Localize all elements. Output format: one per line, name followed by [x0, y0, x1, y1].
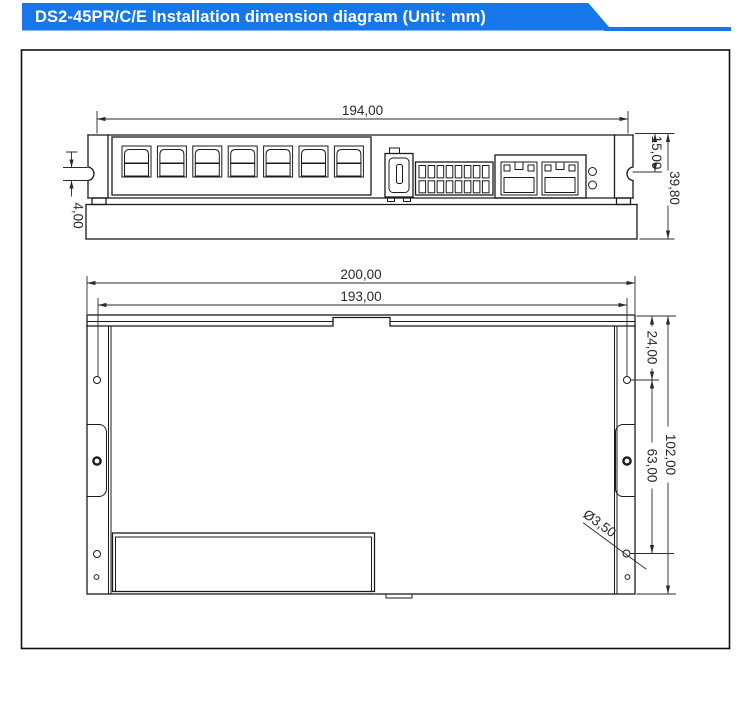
terminal-cell [264, 146, 293, 177]
mounting-rails [109, 326, 618, 594]
dimension-diagram: 194,00 4,00 15,00 39,80 [0, 0, 750, 720]
pin-header [416, 162, 494, 195]
housing-outline [86, 135, 637, 239]
pin-column [419, 166, 426, 193]
rj45-port [542, 162, 578, 195]
terminal-cell [122, 146, 151, 177]
mounting-holes [94, 377, 631, 580]
top-view: 194,00 4,00 15,00 39,80 [64, 103, 683, 239]
pin-column [455, 166, 462, 193]
pin-column [437, 166, 444, 193]
terminal-cell [299, 146, 328, 177]
dim-notch-height: 4,00 [64, 152, 88, 229]
terminal-cell [193, 146, 222, 177]
dim-label-notch-offset: 15,00 [649, 136, 664, 170]
pin-column [446, 166, 453, 193]
bottom-view: 200,00 193,00 24,00 63,00 [87, 267, 678, 598]
dim-hole-top-offset: 24,00 [632, 316, 676, 380]
rj45-port [501, 162, 537, 195]
pin-column [482, 166, 489, 193]
dim-label-total-height: 39,80 [667, 171, 682, 205]
plate-outline [87, 315, 635, 594]
led-indicators [589, 168, 597, 190]
terminal-cell [157, 146, 186, 177]
pin-column [464, 166, 471, 193]
dim-label-overall-height: 102,00 [663, 434, 678, 475]
usb-connector [385, 148, 413, 202]
led-indicator [589, 168, 597, 176]
dim-label-body-width: 194,00 [342, 103, 383, 118]
dim-label-hole-mid-spacing: 63,00 [645, 449, 660, 483]
dim-hole-diameter: Ø3,50 [580, 506, 646, 569]
pin-column [428, 166, 435, 193]
dim-label-notch-height: 4,00 [71, 202, 86, 228]
base-plate-edge [86, 205, 637, 240]
diagram-frame [22, 50, 730, 649]
terminal-cell [334, 146, 363, 177]
led-indicator [589, 181, 597, 189]
dim-label-hole-spacing: 193,00 [340, 289, 381, 304]
bottom-view-dimensions: 200,00 193,00 24,00 63,00 [87, 267, 678, 594]
dim-label-hole-top-offset: 24,00 [645, 331, 660, 365]
terminal-cell [228, 146, 257, 177]
dim-body-width: 194,00 [97, 103, 628, 133]
inner-panel [113, 533, 413, 598]
pin-column [473, 166, 480, 193]
terminal-block [112, 137, 371, 195]
dim-label-overall-width: 200,00 [340, 267, 381, 282]
dim-hole-spacing: 193,00 [98, 289, 627, 377]
top-view-dimensions: 194,00 4,00 15,00 39,80 [64, 103, 683, 239]
ethernet-ports [495, 155, 586, 198]
mounting-slots [87, 425, 635, 497]
